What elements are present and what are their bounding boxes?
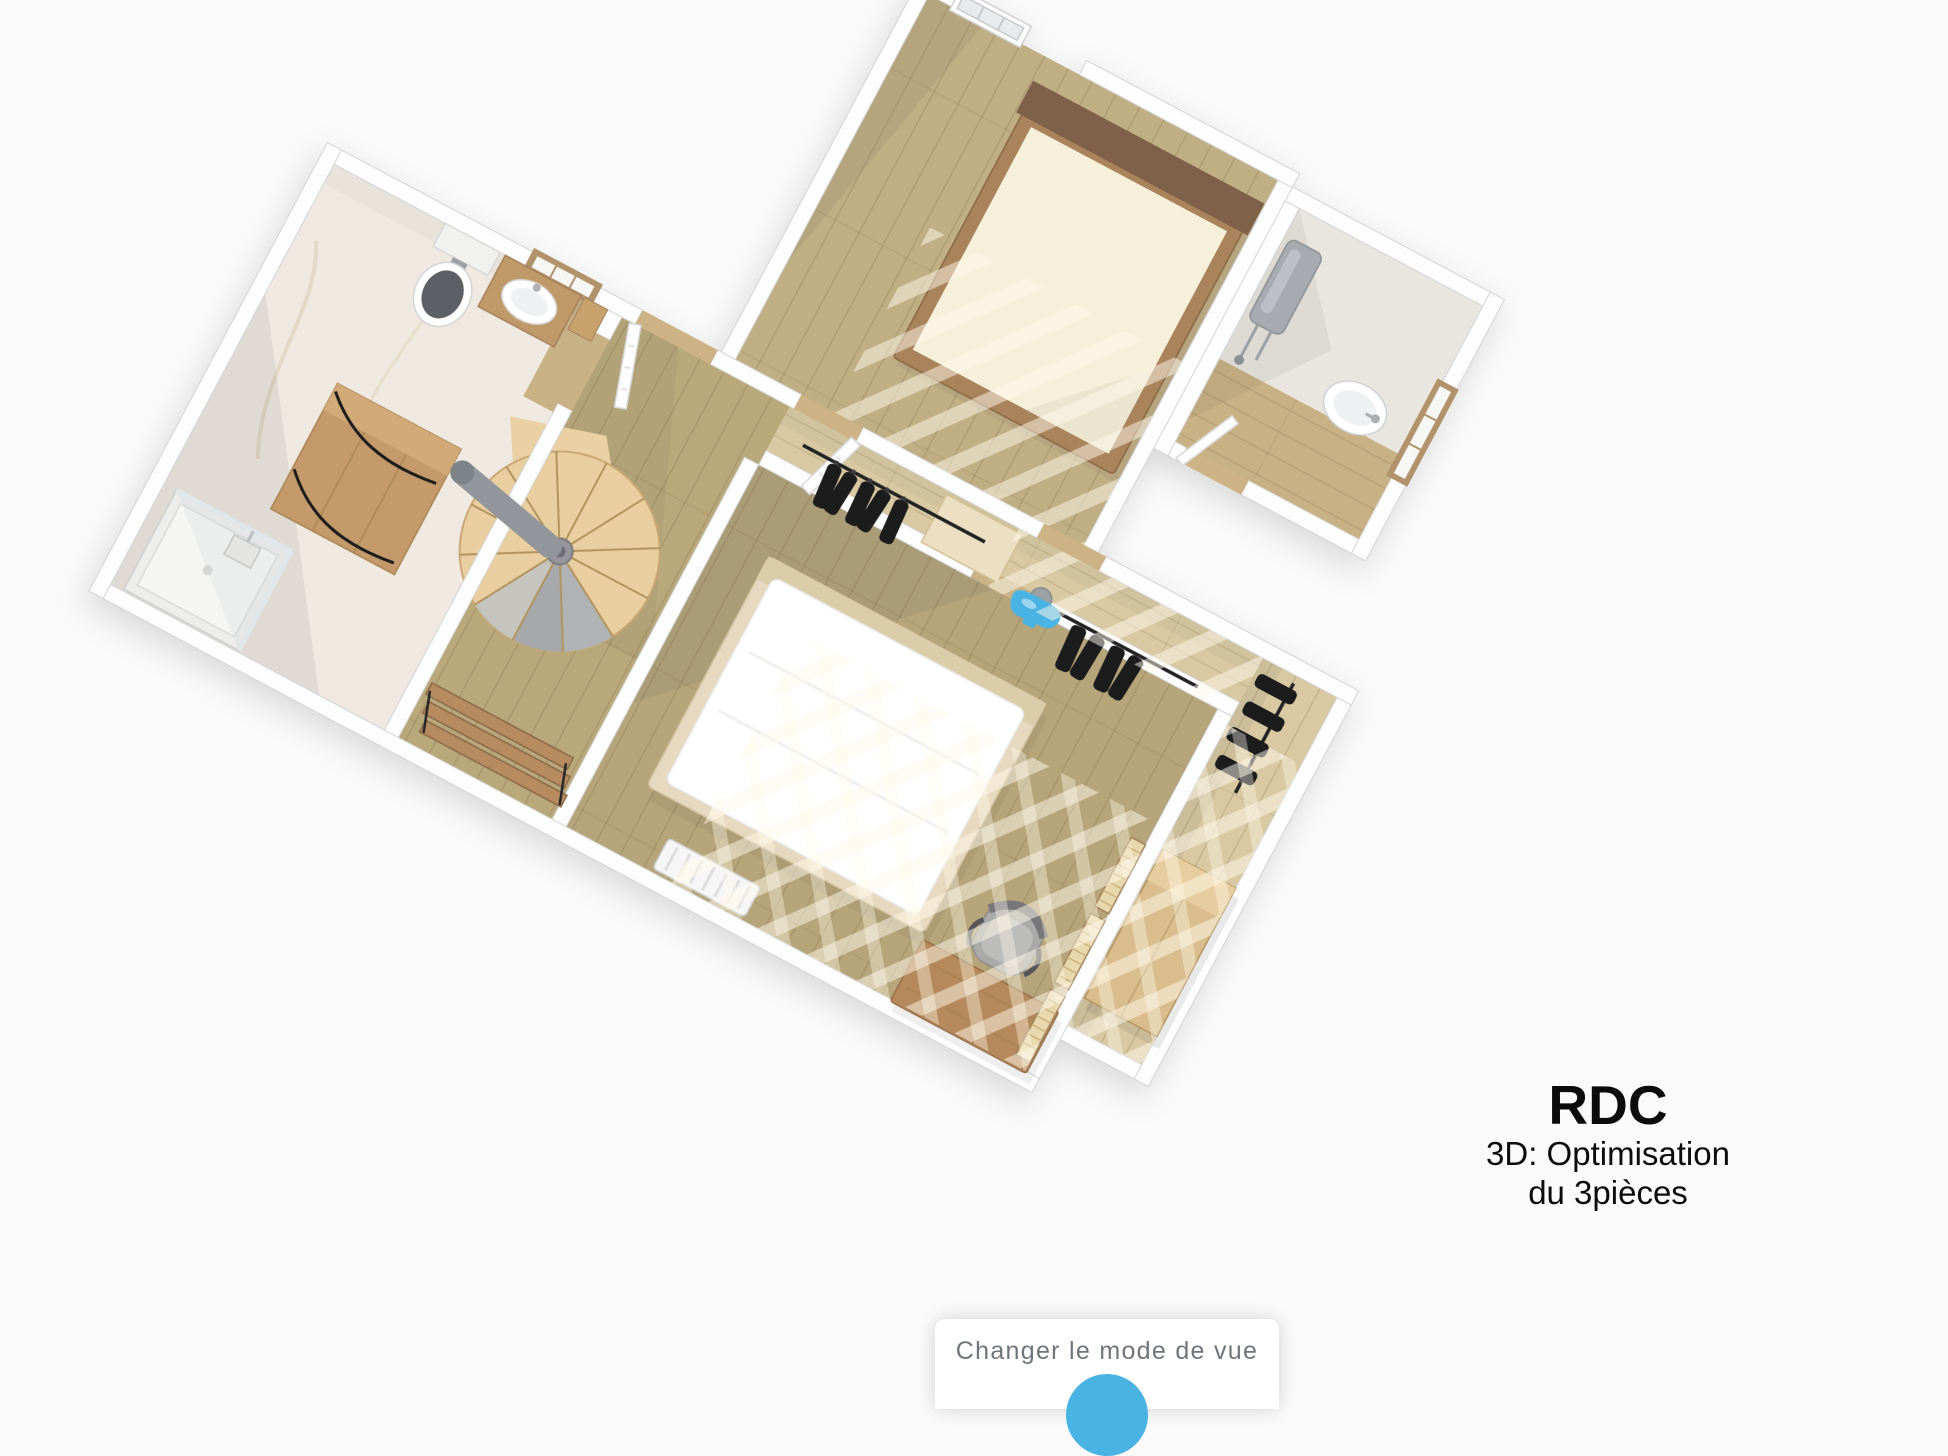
floor-caption: RDC 3D: Optimisation du 3pièces — [1443, 1076, 1773, 1212]
view-mode-panel[interactable]: Changer le mode de vue — [935, 1319, 1279, 1409]
floor-subtitle-line1: 3D: Optimisation — [1443, 1134, 1773, 1173]
view-mode-label: Changer le mode de vue — [935, 1337, 1279, 1366]
floor-title: RDC — [1443, 1076, 1773, 1134]
view-mode-toggle-icon[interactable] — [1066, 1374, 1148, 1456]
floor-subtitle-line2: du 3pièces — [1443, 1173, 1773, 1212]
